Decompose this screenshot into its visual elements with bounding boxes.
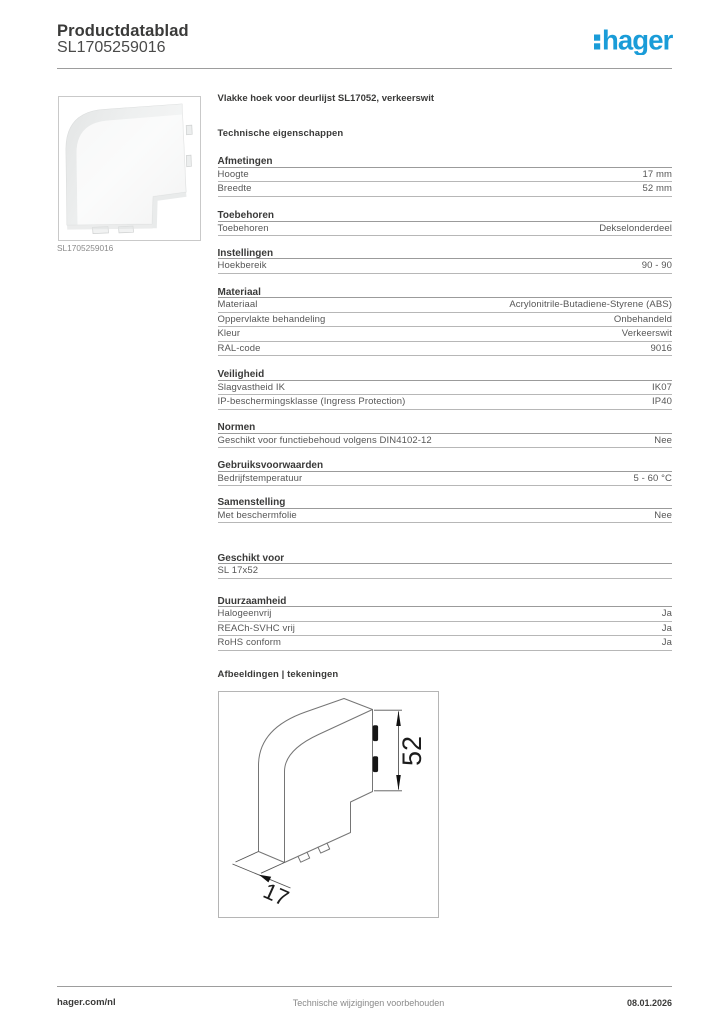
svg-text:17: 17	[259, 878, 292, 911]
svg-text:52: 52	[397, 735, 427, 765]
svg-text:hager: hager	[602, 25, 674, 56]
